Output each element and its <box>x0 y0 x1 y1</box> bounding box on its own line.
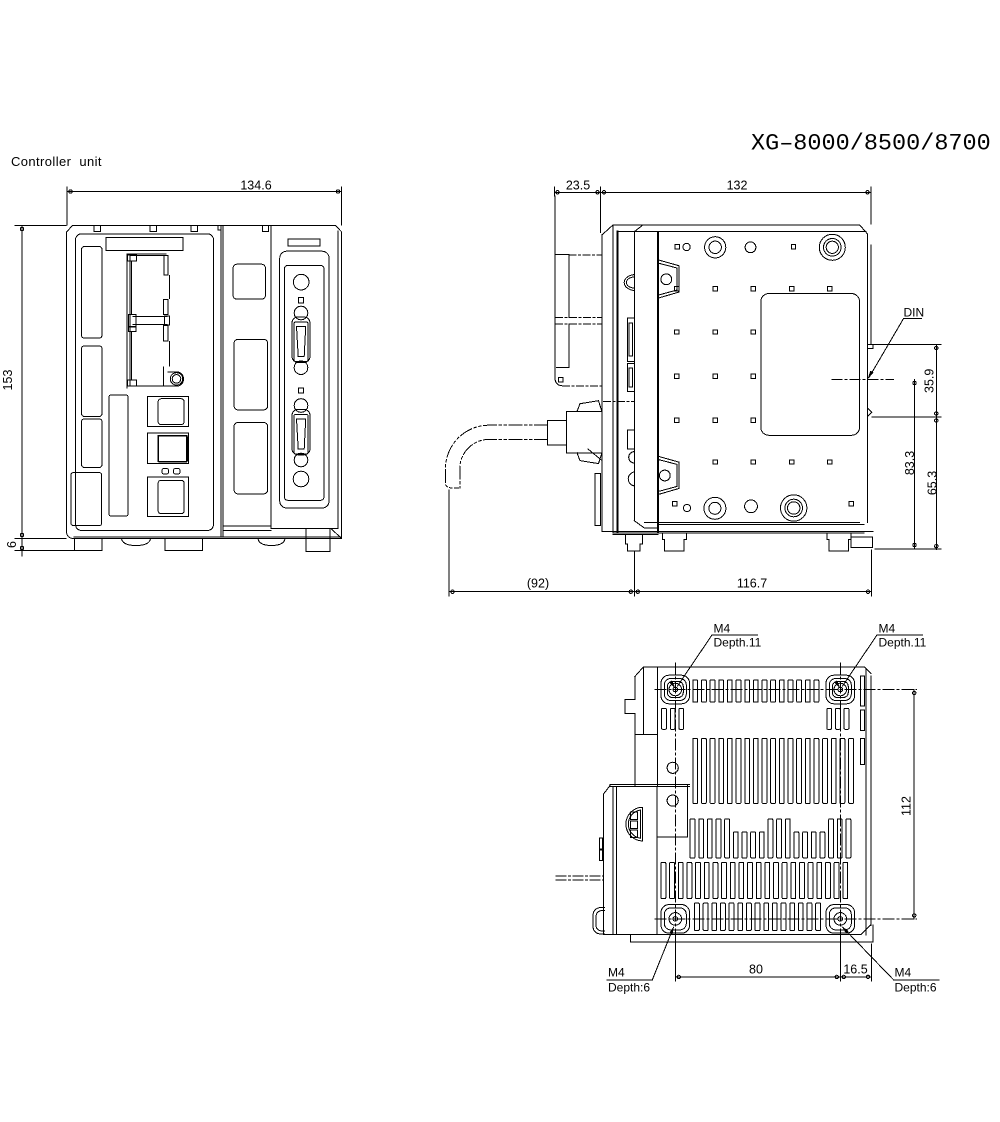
svg-text:134.6: 134.6 <box>240 179 271 193</box>
svg-text:Controller unit: Controller unit <box>11 154 102 169</box>
svg-text:112: 112 <box>900 796 914 816</box>
svg-text:80: 80 <box>749 963 763 977</box>
svg-text:(92): (92) <box>527 577 549 591</box>
svg-text:Depth.11: Depth.11 <box>714 636 762 650</box>
svg-text:16.5: 16.5 <box>843 963 867 977</box>
svg-text:35.9: 35.9 <box>923 369 937 393</box>
svg-text:M4: M4 <box>608 966 625 980</box>
svg-text:DIN: DIN <box>904 306 925 320</box>
svg-text:116.7: 116.7 <box>737 577 767 591</box>
svg-text:Depth:6: Depth:6 <box>608 981 650 995</box>
svg-text:83.3: 83.3 <box>903 451 917 475</box>
svg-text:Depth:6: Depth:6 <box>895 981 937 995</box>
svg-text:XG–8000/8500/8700: XG–8000/8500/8700 <box>751 131 991 158</box>
svg-text:M4: M4 <box>714 622 731 636</box>
svg-text:65.3: 65.3 <box>926 471 940 495</box>
svg-text:153: 153 <box>1 370 15 391</box>
svg-text:23.5: 23.5 <box>566 179 590 193</box>
svg-text:Depth.11: Depth.11 <box>879 636 927 650</box>
svg-text:M4: M4 <box>879 622 896 636</box>
svg-text:6: 6 <box>5 541 19 548</box>
svg-text:M4: M4 <box>895 966 912 980</box>
svg-text:132: 132 <box>727 179 748 193</box>
